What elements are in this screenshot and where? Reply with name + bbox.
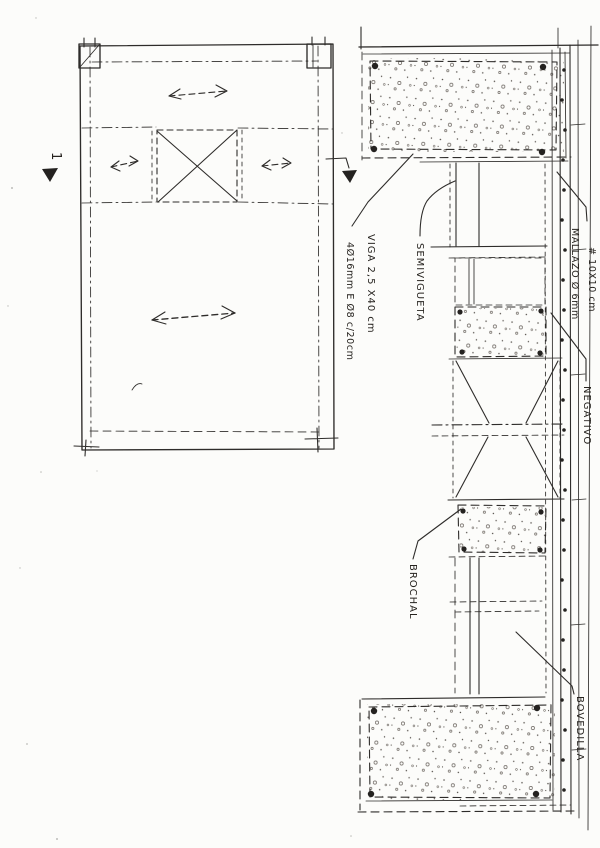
concrete-stipple xyxy=(368,58,564,152)
label-brochal: BROCHAL xyxy=(407,564,418,620)
beam-section-bottom xyxy=(358,697,576,812)
label-bovedilla: BOVEDILLA xyxy=(574,696,585,761)
negativo-block xyxy=(455,307,546,357)
brochal-block xyxy=(458,505,546,553)
beam-section-top xyxy=(362,52,571,162)
label-semivigueta: SEMIVIGUETA xyxy=(414,243,425,322)
label-viga-line2: 4Ø16mm E Ø8 c/20cm xyxy=(344,242,355,361)
label-negativo: NEGATIVO xyxy=(581,386,592,445)
label-mallazo-line2: # 10X10 cm xyxy=(586,247,597,312)
concrete-stipple xyxy=(456,308,544,355)
section-number: 1 xyxy=(48,152,63,160)
drawing-canvas: 1 xyxy=(0,0,600,848)
label-mallazo-line1: MALLAZO Ø 6mm xyxy=(569,228,580,320)
concrete-stipple xyxy=(460,507,545,552)
label-viga-line1: VIGA 2,5 X40 cm xyxy=(365,234,376,334)
scanned-structural-sketch: 1 xyxy=(0,0,600,848)
concrete-stipple xyxy=(367,704,555,800)
